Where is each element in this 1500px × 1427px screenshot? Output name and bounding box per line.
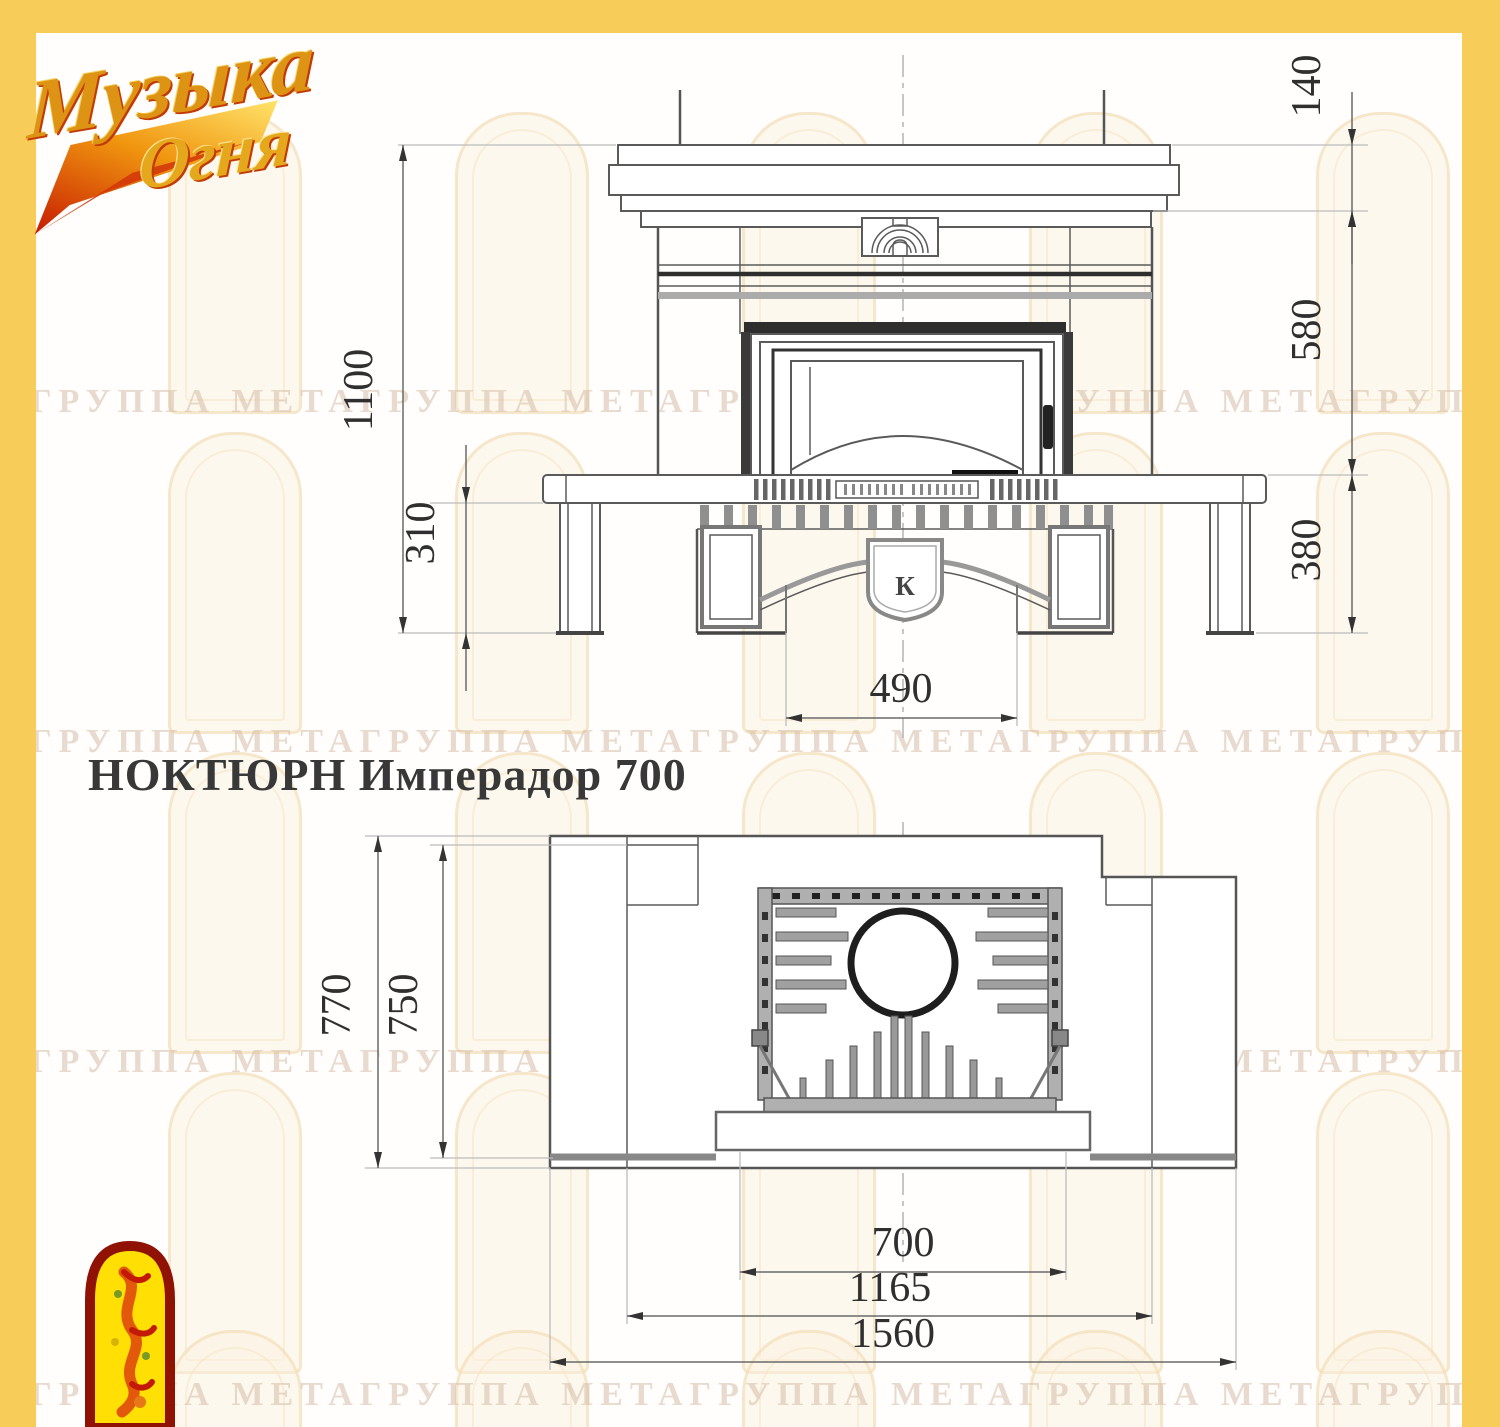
plan-view: 770 750 700 1165 1560 bbox=[314, 822, 1236, 1370]
front-view: К 1100 310 140 580 bbox=[336, 55, 1368, 739]
flue-collar bbox=[851, 911, 955, 1015]
firebird-emblem bbox=[82, 1238, 178, 1427]
shell-ornament bbox=[862, 218, 938, 256]
fireplace-drawing: К 1100 310 140 580 bbox=[0, 0, 1500, 1427]
dim-total-depth: 770 bbox=[314, 974, 360, 1037]
door-handle bbox=[1043, 405, 1053, 449]
dim-inner-width: 1165 bbox=[849, 1265, 931, 1311]
dim-total-width: 1560 bbox=[851, 1311, 935, 1357]
dim-inner-depth: 750 bbox=[381, 974, 427, 1037]
dim-mantel-height: 140 bbox=[1284, 55, 1330, 118]
dim-firebox-width: 700 bbox=[872, 1220, 935, 1266]
ash-grille bbox=[754, 479, 1058, 500]
shield-emblem: К bbox=[868, 540, 942, 620]
page: ГРУППА МЕТАГРУППА МЕТАГРУППА МЕТАГРУППА … bbox=[0, 0, 1500, 1427]
front-plate bbox=[716, 1112, 1090, 1150]
shield-letter: К bbox=[895, 571, 915, 601]
dim-total-height: 1100 bbox=[336, 349, 382, 431]
dim-base-height: 380 bbox=[1284, 519, 1330, 582]
dim-body-height: 580 bbox=[1284, 299, 1330, 362]
dim-plinth-height: 310 bbox=[398, 502, 444, 565]
dim-pedestal-width: 490 bbox=[870, 666, 933, 712]
